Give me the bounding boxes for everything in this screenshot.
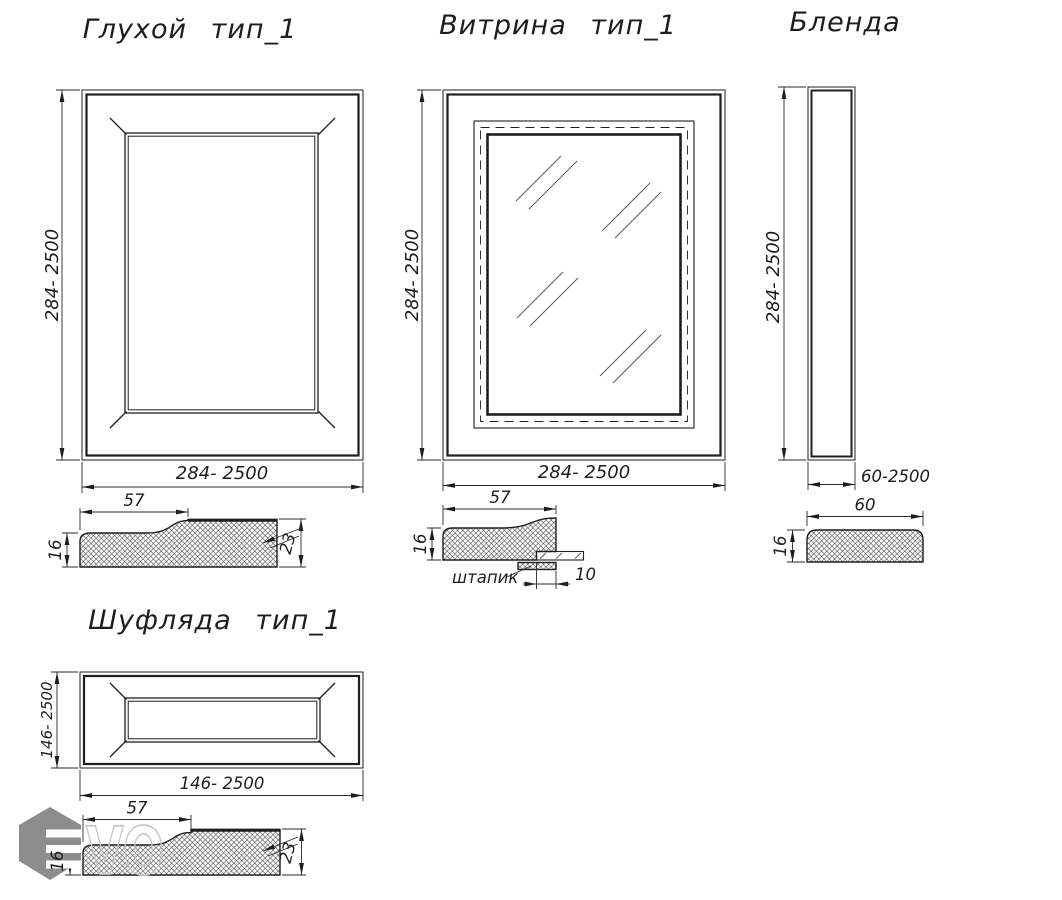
solid-door-profile: 57 16 23 xyxy=(46,491,306,567)
drawer-width-dim: 146- 2500 xyxy=(180,774,265,793)
blenda-profile: 60 16 xyxy=(771,496,923,563)
blenda-front-view xyxy=(808,87,855,460)
solid-door-profile-left-height-dim: 16 xyxy=(46,540,65,561)
blenda-profile-width-dim: 60 xyxy=(855,496,876,515)
vitrina-section: Витрина тип_1 284- 2500 284- 2500 xyxy=(402,10,725,589)
blenda-profile-cross-section xyxy=(807,530,923,562)
solid-door-outer-edge xyxy=(82,90,363,460)
solid-door-section: Глухой тип_1 284- 2500 284- 2500 57 16 xyxy=(42,14,363,567)
solid-door-width-dim: 284- 2500 xyxy=(176,463,268,484)
glass-reflection-lines xyxy=(516,156,661,383)
drawer-panel-outer xyxy=(125,698,320,742)
drawer-mitre-marks xyxy=(110,683,335,757)
drawer-profile-left-height-dim: 16 xyxy=(48,851,67,872)
evo-logo: VO xyxy=(19,807,164,890)
solid-door-panel-inner xyxy=(128,136,315,410)
solid-door-profile-cross-section xyxy=(80,519,277,567)
drawer-dimensions: 146- 2500 146- 2500 xyxy=(38,672,363,801)
drawer-profile-right-height-dim: 23 xyxy=(276,840,300,865)
blenda-face-edge xyxy=(812,91,852,457)
blenda-section: Бленда 284- 2500 60-2500 60 16 xyxy=(763,7,930,562)
glazing-bead-section xyxy=(518,563,556,570)
vitrina-glass-frame xyxy=(488,135,681,415)
blenda-width-dim: 60-2500 xyxy=(861,467,930,486)
solid-door-height-dim: 284- 2500 xyxy=(42,229,63,321)
logo-text: VO xyxy=(86,813,164,890)
solid-door-profile-width-dim: 57 xyxy=(124,491,145,510)
vitrina-profile-width-dim: 57 xyxy=(490,488,511,507)
vitrina-height-dim: 284- 2500 xyxy=(402,229,423,321)
drawer-panel-inner xyxy=(128,701,317,739)
drawer-title: Шуфляда тип_1 xyxy=(88,605,342,636)
vitrina-title: Витрина тип_1 xyxy=(439,10,677,41)
blenda-dimensions: 284- 2500 60-2500 xyxy=(763,87,930,490)
vitrina-width-dim: 284- 2500 xyxy=(538,462,630,483)
blenda-height-dim: 284- 2500 xyxy=(763,231,784,323)
glass-pane-section xyxy=(537,552,584,561)
vitrina-dimensions: 284- 2500 284- 2500 xyxy=(402,90,725,491)
vitrina-opening-edge xyxy=(474,121,694,428)
blenda-title: Бленда xyxy=(789,7,900,38)
solid-door-title: Глухой тип_1 xyxy=(83,14,298,45)
drawer-front-view xyxy=(80,672,363,768)
vitrina-rebate-hidden-line xyxy=(481,128,688,422)
blenda-outer-edge xyxy=(808,87,855,460)
solid-door-mitre-marks xyxy=(110,118,335,428)
technical-drawing-canvas: Глухой тип_1 284- 2500 284- 2500 57 16 xyxy=(0,0,1062,900)
glazing-bead-width-dim: 10 xyxy=(575,565,596,584)
blenda-profile-left-height-dim: 16 xyxy=(771,536,790,557)
drawer-height-dim: 146- 2500 xyxy=(38,682,56,759)
vitrina-profile-cross-section xyxy=(443,518,556,560)
vitrina-profile-left-height-dim: 16 xyxy=(411,534,430,555)
glazing-bead-label: штапик xyxy=(452,568,518,587)
solid-door-front-view xyxy=(82,90,363,460)
solid-door-panel-outer xyxy=(125,133,318,413)
vitrina-profile: 57 16 штапик 10 xyxy=(411,488,596,589)
solid-door-profile-right-height-dim: 23 xyxy=(276,531,300,556)
vitrina-outer-edge xyxy=(443,90,725,460)
vitrina-front-view xyxy=(443,90,725,460)
